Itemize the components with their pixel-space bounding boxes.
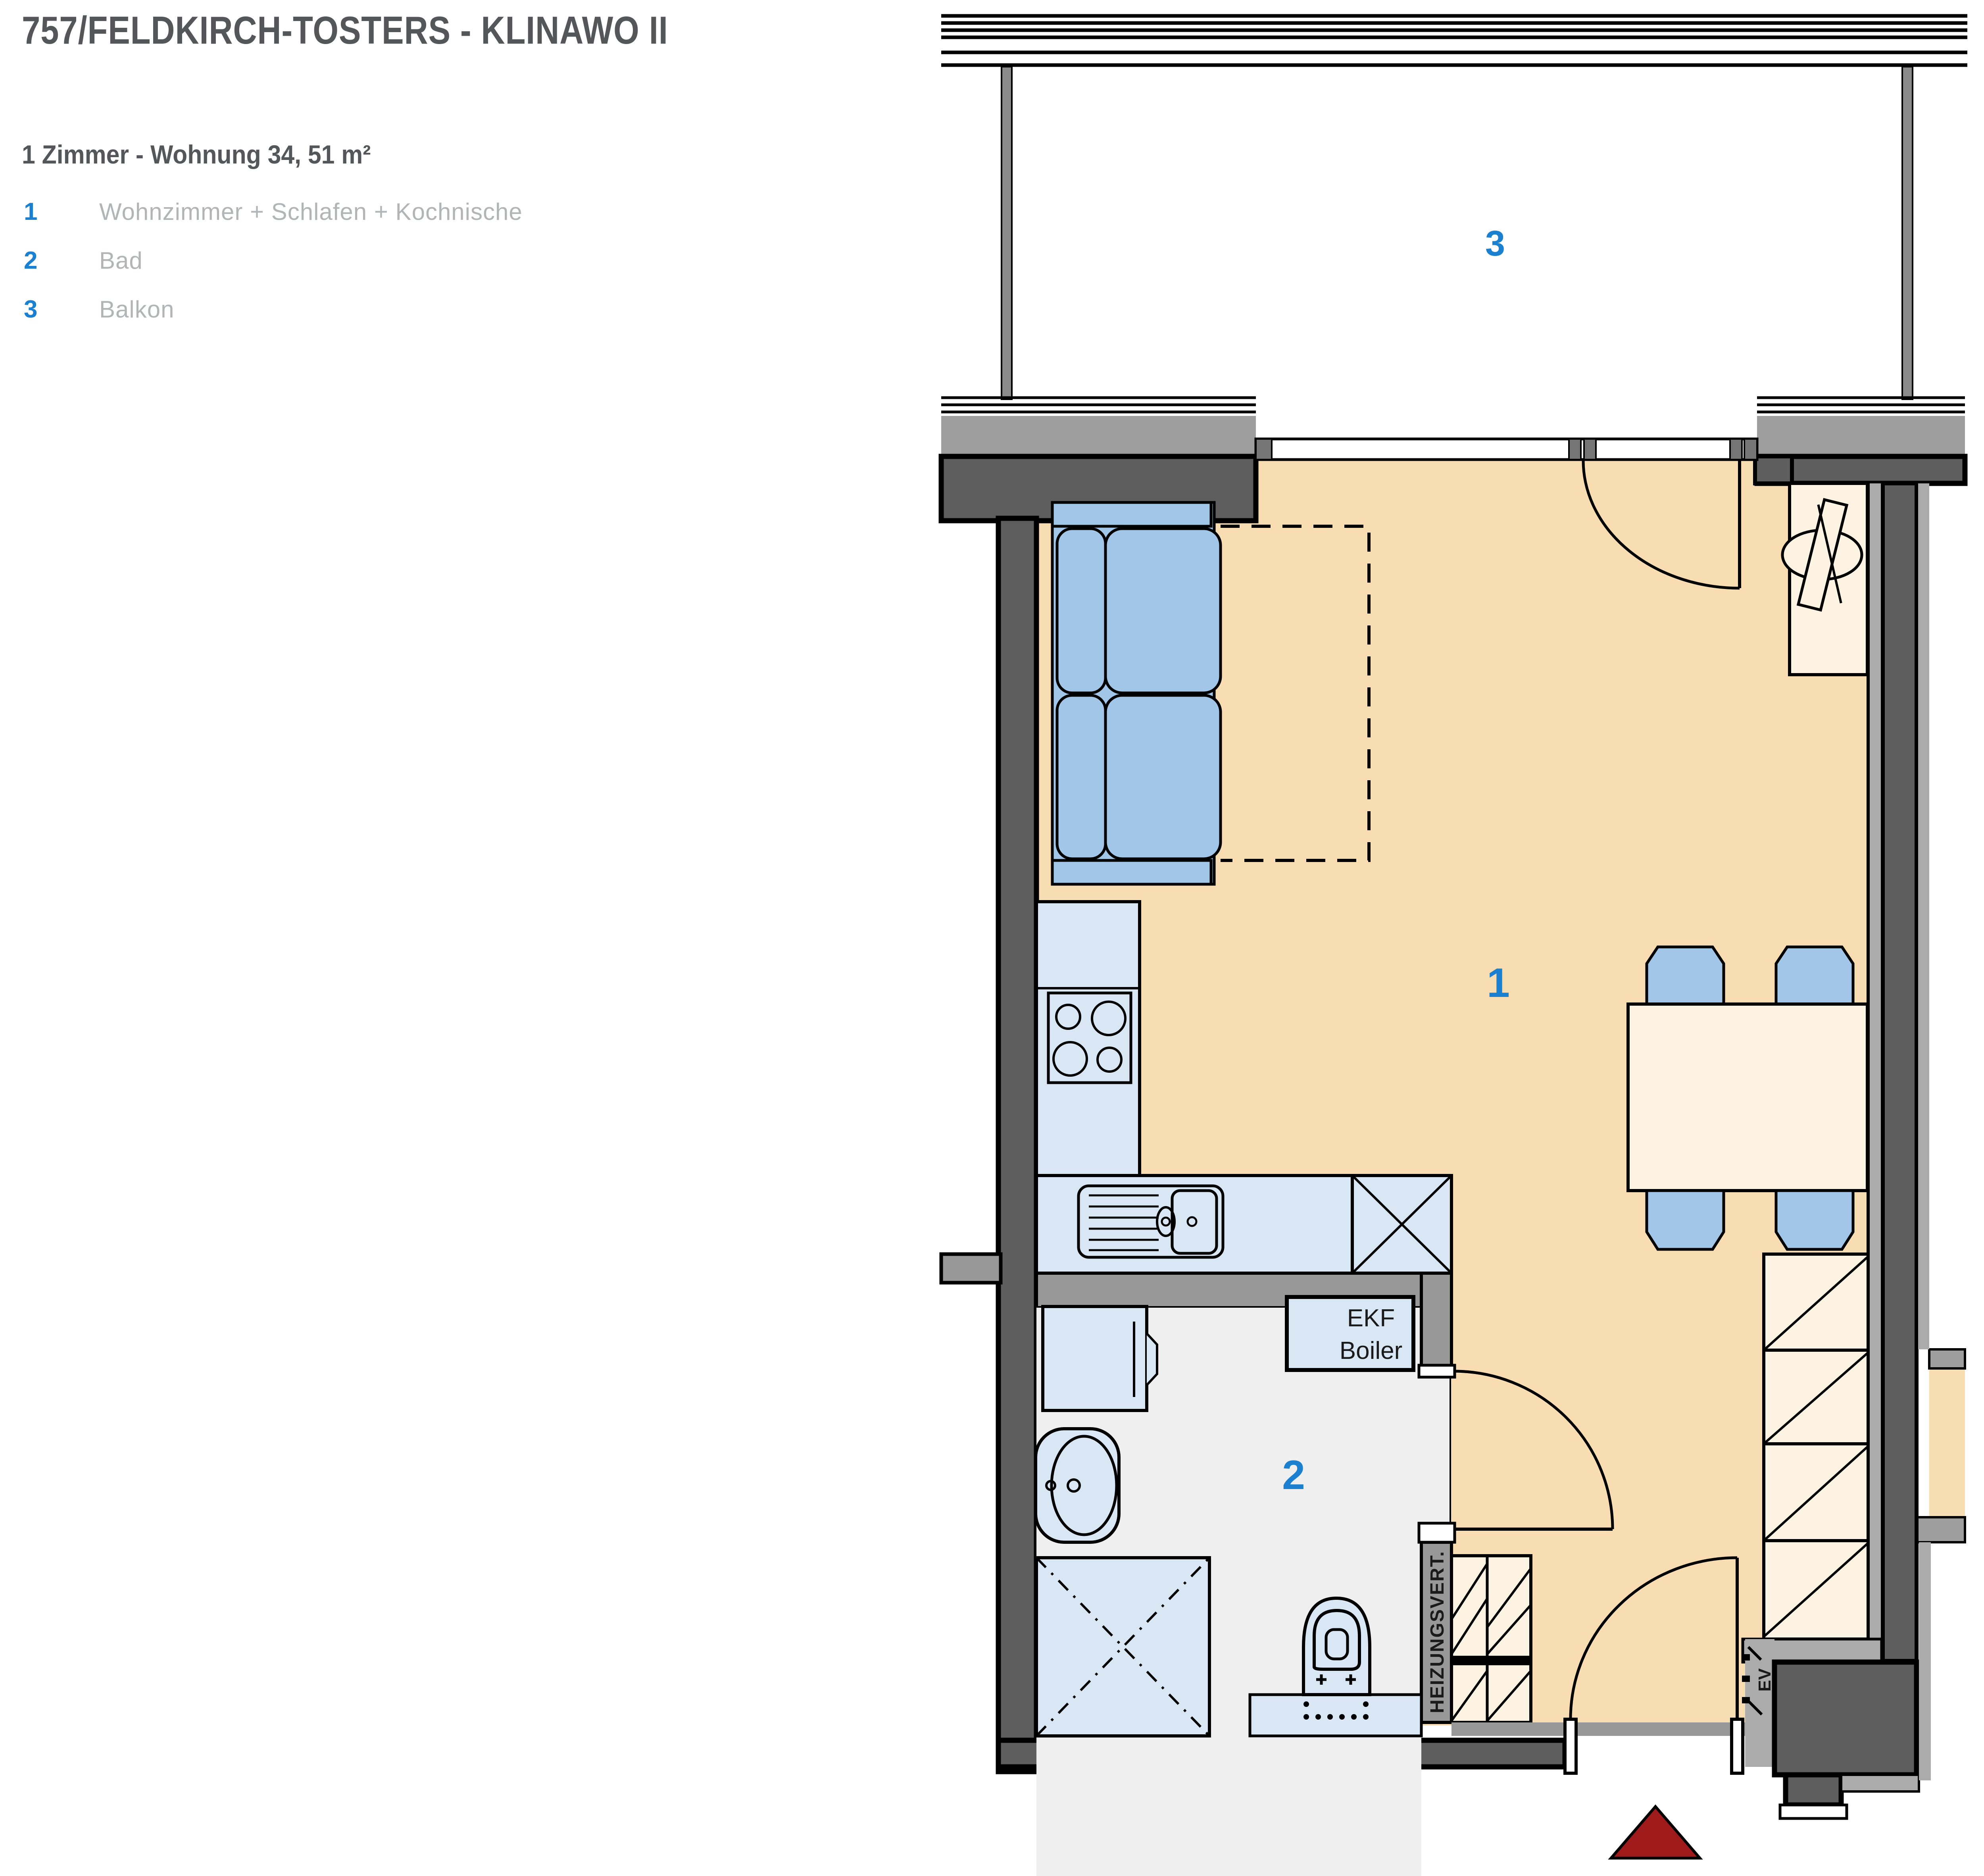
wall-stub-left: [941, 1254, 1001, 1283]
washing-machine: [1043, 1306, 1157, 1410]
bath-heating-shaft-label: HEIZUNGSVERT.: [1427, 1551, 1448, 1713]
tall-unit-fridge: [1352, 1176, 1451, 1273]
label-bathroom: 2: [1282, 1452, 1305, 1498]
entry-jamb-right: [1732, 1719, 1743, 1773]
window-mullion-b: [1584, 439, 1596, 460]
boiler-label-line2: Boiler: [1340, 1337, 1403, 1364]
washbasin: [1036, 1429, 1119, 1542]
entry-jamb-left: [1565, 1719, 1576, 1773]
dining-chair: [1776, 947, 1853, 1004]
dining-chair: [1647, 1191, 1724, 1249]
dining-chair: [1647, 947, 1724, 1004]
toilet: [1303, 1598, 1370, 1695]
entry-wall-leg: [1786, 1775, 1841, 1805]
sofa-seat-cushion: [1105, 529, 1221, 693]
sofa-armrest-top: [1052, 502, 1211, 526]
desk: [1782, 483, 1867, 675]
shower: [1036, 1558, 1209, 1736]
entrance-arrow: [1611, 1807, 1700, 1858]
wall-pier-right: [1755, 456, 1792, 483]
label-living-room: 1: [1487, 960, 1510, 1006]
window-mullion-d: [1744, 439, 1757, 460]
balcony-posts: [1002, 67, 1913, 399]
ev-label: EV: [1755, 1668, 1774, 1691]
window-mullion-c: [1730, 439, 1742, 460]
label-balcony: 3: [1485, 224, 1505, 264]
bath-door-jamb-top: [1419, 1365, 1455, 1377]
bath-mat-counter: [1250, 1695, 1421, 1736]
bath-door-jamb-bottom: [1419, 1523, 1455, 1542]
sofa-back-cushion: [1057, 529, 1105, 693]
bathroom-wall-right-upper: [1421, 1273, 1451, 1368]
boiler-label-line1: EKF: [1347, 1305, 1395, 1332]
window-jamb-left: [1256, 439, 1272, 460]
wall-right: [1883, 483, 1917, 1661]
wardrobe-closet: [1764, 1254, 1868, 1639]
balcony-railing: [941, 16, 1967, 65]
balcony-post-left: [1002, 67, 1012, 399]
wall-left: [998, 518, 1036, 1772]
wall-right-outer-strip: [1918, 483, 1929, 1349]
dining-table: [1628, 1004, 1867, 1191]
boiler-box: EKF Boiler: [1287, 1297, 1413, 1370]
sofa-back-cushion: [1057, 695, 1105, 859]
floor-plan: HEIZUNGSVERT.: [0, 0, 1984, 1876]
entry-wall-block: [1774, 1662, 1917, 1775]
balcony-post-right: [1902, 67, 1913, 399]
entry-threshold: [1780, 1805, 1847, 1818]
window-mullion-a: [1569, 439, 1581, 460]
sofa-armrest-bottom: [1052, 860, 1211, 884]
sofa-seat-cushion: [1105, 695, 1221, 859]
dining-chair: [1776, 1191, 1853, 1249]
